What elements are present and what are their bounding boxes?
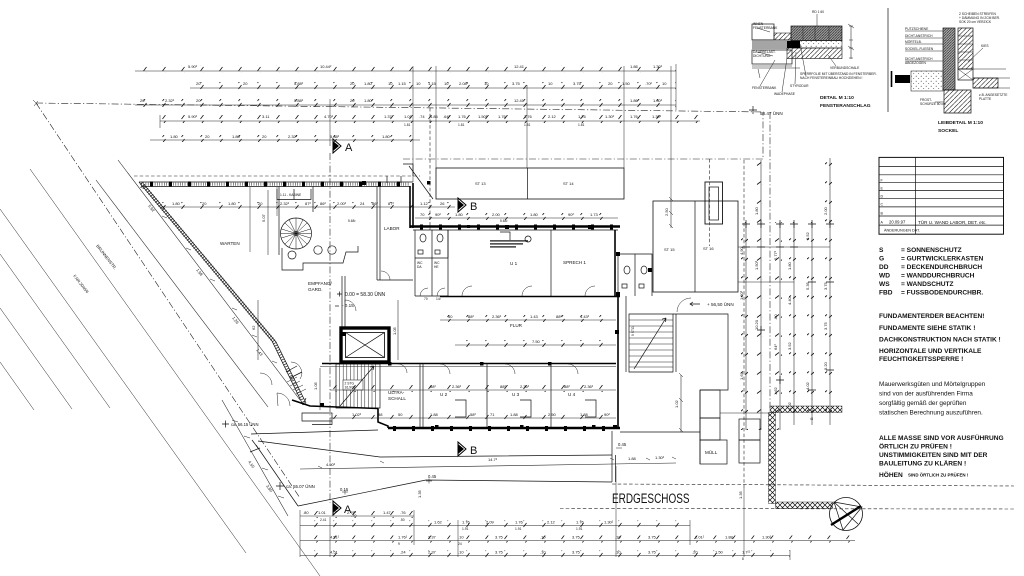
svg-text:FENSTERBANK: FENSTERBANK bbox=[753, 26, 778, 30]
svg-text:1.05: 1.05 bbox=[392, 326, 397, 335]
svg-text:DICHTUNG: DICHTUNG bbox=[753, 54, 771, 58]
svg-text:= DECKENDURCHBRUCH: = DECKENDURCHBRUCH bbox=[901, 264, 982, 271]
svg-text:MÖRTELB.: MÖRTELB. bbox=[905, 40, 922, 44]
svg-text:ABGEZOGEN: ABGEZOGEN bbox=[905, 61, 927, 65]
svg-text:1.35: 1.35 bbox=[417, 489, 422, 498]
svg-text:SOK 20 cm VERZICK: SOK 20 cm VERZICK bbox=[959, 20, 992, 24]
svg-text:ST 13: ST 13 bbox=[475, 181, 486, 186]
svg-text:sind von der ausführenden Firm: sind von der ausführenden Firma bbox=[879, 391, 973, 398]
svg-text:GARD.: GARD. bbox=[308, 287, 323, 292]
svg-text:1.30²: 1.30² bbox=[655, 455, 665, 460]
svg-text:TÜR U. WAND LABOR, DET. etc.: TÜR U. WAND LABOR, DET. etc. bbox=[918, 219, 987, 225]
svg-text:3.52: 3.52 bbox=[787, 341, 792, 350]
svg-text:5.07: 5.07 bbox=[261, 213, 266, 222]
svg-text:ST 14: ST 14 bbox=[563, 181, 574, 186]
svg-text:NACH FENSTEREINBAU HOCHZIEHEN: NACH FENSTEREINBAU HOCHZIEHEN ! bbox=[800, 76, 863, 80]
svg-text:B: B bbox=[470, 445, 477, 457]
svg-text:7.50: 7.50 bbox=[532, 339, 541, 344]
svg-text:SCHALL: SCHALL bbox=[388, 396, 406, 401]
svg-text:WD: WD bbox=[879, 273, 890, 280]
svg-text:ST 15: ST 15 bbox=[664, 247, 675, 252]
svg-text:HÖHEN: HÖHEN bbox=[879, 470, 903, 479]
svg-text:3.75: 3.75 bbox=[823, 281, 828, 290]
svg-text:BAULEITUNG ZU KLÄREN !: BAULEITUNG ZU KLÄREN ! bbox=[879, 460, 966, 468]
svg-text:1.80: 1.80 bbox=[754, 206, 759, 215]
svg-text:FBD: FBD bbox=[879, 290, 893, 297]
svg-text:SCHÜRZE 80 cm: SCHÜRZE 80 cm bbox=[920, 102, 946, 106]
svg-text:5.35: 5.35 bbox=[805, 281, 810, 290]
svg-text:FUNDAMENTERDER BEACHTEN!: FUNDAMENTERDER BEACHTEN! bbox=[879, 313, 985, 320]
svg-text:S: S bbox=[879, 247, 884, 254]
svg-text:DICHT.ANSTRICH: DICHT.ANSTRICH bbox=[905, 34, 933, 38]
svg-text:SPRECH 1: SPRECH 1 bbox=[563, 260, 586, 265]
svg-text:9 STG: 9 STG bbox=[631, 326, 635, 336]
svg-text:0.45: 0.45 bbox=[428, 474, 437, 479]
svg-text:B: B bbox=[470, 201, 477, 213]
svg-text:10.20: 10.20 bbox=[754, 319, 759, 330]
svg-text:SOCKEL-FLIESEN: SOCKEL-FLIESEN bbox=[905, 47, 934, 51]
svg-text:1.05: 1.05 bbox=[313, 381, 318, 390]
svg-text:9.20: 9.20 bbox=[823, 361, 828, 370]
svg-text:U 1: U 1 bbox=[510, 261, 518, 266]
svg-text:70: 70 bbox=[424, 297, 428, 301]
svg-text:= SONNENSCHUTZ: = SONNENSCHUTZ bbox=[901, 247, 962, 254]
svg-text:62: 62 bbox=[251, 325, 256, 330]
svg-text:G: G bbox=[879, 256, 884, 263]
svg-text:Mauerwerksgüten und Mörtelgrup: Mauerwerksgüten und Mörtelgruppen bbox=[879, 381, 986, 388]
svg-text:64²: 64² bbox=[773, 344, 778, 350]
svg-text:HE: HE bbox=[434, 265, 439, 269]
svg-text:4.90: 4.90 bbox=[739, 246, 744, 255]
svg-text:1.35: 1.35 bbox=[738, 490, 743, 499]
svg-text:A: A bbox=[345, 142, 353, 154]
svg-text:EMPFANG/: EMPFANG/ bbox=[308, 281, 332, 286]
svg-text:20.09.97: 20.09.97 bbox=[889, 220, 906, 225]
svg-text:.80: .80 bbox=[773, 314, 778, 320]
svg-text:2.50: 2.50 bbox=[664, 207, 669, 216]
svg-text:14.7²: 14.7² bbox=[488, 457, 498, 462]
svg-text:ERDGESCHOSS: ERDGESCHOSS bbox=[612, 491, 690, 507]
svg-text:5.68²: 5.68² bbox=[348, 219, 356, 223]
svg-text:RD 1 60: RD 1 60 bbox=[812, 10, 824, 14]
svg-text:STYRODUR: STYRODUR bbox=[790, 84, 809, 88]
svg-text:+ 56,50 ÜNN: + 56,50 ÜNN bbox=[707, 301, 734, 307]
svg-text:1.80: 1.80 bbox=[787, 261, 792, 270]
svg-text:DA: DA bbox=[417, 265, 422, 269]
svg-text:2.77²: 2.77² bbox=[773, 250, 778, 260]
svg-text:FENSTERANSCHLAG: FENSTERANSCHLAG bbox=[820, 103, 871, 109]
svg-text:LEIBDETAIL M 1:10: LEIBDETAIL M 1:10 bbox=[938, 120, 983, 126]
svg-text:ÖRTLICH ZU PRÜFEN !: ÖRTLICH ZU PRÜFEN ! bbox=[879, 442, 952, 451]
svg-text:- 0.15: - 0.15 bbox=[342, 303, 354, 308]
svg-text:LABOR: LABOR bbox=[384, 226, 400, 231]
svg-text:WADEPHASE: WADEPHASE bbox=[774, 92, 796, 96]
svg-text:1.62: 1.62 bbox=[739, 371, 744, 380]
svg-text:U 3: U 3 bbox=[512, 392, 520, 397]
svg-text:PLATTE: PLATTE bbox=[979, 97, 992, 101]
svg-text:= FUSSBODENDURCHBR.: = FUSSBODENDURCHBR. bbox=[901, 290, 983, 297]
svg-text:SIND ÖRTLICH ZU PRÜFEN !: SIND ÖRTLICH ZU PRÜFEN ! bbox=[908, 473, 969, 478]
svg-text:0.15: 0.15 bbox=[340, 487, 349, 492]
svg-text:U 2: U 2 bbox=[440, 392, 448, 397]
svg-text:ALLE MASSE SIND VOR AUSFÜHRUNG: ALLE MASSE SIND VOR AUSFÜHRUNG bbox=[879, 433, 1004, 442]
svg-text:DACHKONSTRUKTION NACH STATIK !: DACHKONSTRUKTION NACH STATIK ! bbox=[879, 337, 1001, 344]
svg-text:FUNDAMENTE SIEHE STATIK !: FUNDAMENTE SIEHE STATIK ! bbox=[879, 325, 975, 332]
svg-text:VERBUNDSCHALE: VERBUNDSCHALE bbox=[830, 66, 860, 70]
svg-text:KIES: KIES bbox=[981, 44, 989, 48]
svg-text:5.68²: 5.68² bbox=[500, 219, 508, 223]
svg-text:FEUCHTIGKEITSSPERRE !: FEUCHTIGKEITSSPERRE ! bbox=[879, 356, 963, 363]
svg-text:PUTZSCHIENE: PUTZSCHIENE bbox=[905, 27, 929, 31]
svg-text:U 4: U 4 bbox=[568, 392, 576, 397]
svg-text:0.00 = 58.30 ÜNN: 0.00 = 58.30 ÜNN bbox=[345, 291, 386, 298]
svg-text:4.02: 4.02 bbox=[805, 381, 810, 390]
svg-text:B: B bbox=[809, 417, 814, 420]
svg-text:HORIZONTALE UND VERTIKALE: HORIZONTALE UND VERTIKALE bbox=[879, 348, 982, 355]
svg-text:UNSTIMMIGKEITEN SIND MIT DER: UNSTIMMIGKEITEN SIND MIT DER bbox=[879, 452, 988, 459]
svg-text:ST 16: ST 16 bbox=[703, 246, 714, 251]
svg-text:WS: WS bbox=[879, 281, 890, 288]
svg-text:4.50²: 4.50² bbox=[326, 462, 336, 467]
svg-text:C: C bbox=[881, 203, 884, 207]
svg-text:1.50²: 1.50² bbox=[739, 290, 744, 300]
svg-text:D: D bbox=[881, 195, 884, 199]
svg-text:MÜLL: MÜLL bbox=[705, 449, 718, 455]
svg-text:58.47 ÜNN: 58.47 ÜNN bbox=[760, 110, 783, 116]
svg-text:0.45: 0.45 bbox=[618, 442, 627, 447]
svg-text:3.75: 3.75 bbox=[823, 321, 828, 330]
svg-text:1.50²: 1.50² bbox=[754, 260, 759, 270]
svg-text:ca. 55.07 ÜNN: ca. 55.07 ÜNN bbox=[286, 484, 315, 489]
svg-text:4.40: 4.40 bbox=[787, 296, 792, 305]
svg-text:8: 8 bbox=[742, 557, 744, 561]
svg-text:1.88: 1.88 bbox=[628, 456, 637, 461]
svg-text:SOCKEL: SOCKEL bbox=[938, 128, 958, 134]
svg-text:DETAIL M 1:10: DETAIL M 1:10 bbox=[820, 95, 854, 101]
svg-text:1.02: 1.02 bbox=[674, 399, 679, 408]
svg-text:statischen Berechnung auszufüh: statischen Berechnung auszuführen. bbox=[879, 410, 983, 417]
svg-text:FLUR: FLUR bbox=[510, 323, 523, 328]
svg-text:3.52: 3.52 bbox=[805, 231, 810, 240]
svg-text:ÄNDERUNGEN DAT.: ÄNDERUNGEN DAT. bbox=[884, 229, 920, 233]
svg-text:DD: DD bbox=[879, 264, 889, 271]
svg-text:sorgfältig gemäß der geprüften: sorgfältig gemäß der geprüften bbox=[879, 400, 967, 407]
svg-text:1.62: 1.62 bbox=[773, 386, 778, 395]
svg-text:1.02: 1.02 bbox=[787, 401, 792, 410]
svg-text:2.00: 2.00 bbox=[823, 206, 828, 215]
svg-text:= WANDSCHUTZ: = WANDSCHUTZ bbox=[901, 281, 954, 288]
svg-text:1.11 - KABINE: 1.11 - KABINE bbox=[280, 193, 302, 197]
svg-text:= WANDDURCHBRUCH: = WANDDURCHBRUCH bbox=[901, 273, 975, 280]
svg-text:WARTEN: WARTEN bbox=[220, 241, 240, 246]
svg-text:FENSTERBANK: FENSTERBANK bbox=[752, 86, 777, 90]
svg-text:= GURTWICKLERKASTEN: = GURTWICKLERKASTEN bbox=[901, 256, 983, 263]
